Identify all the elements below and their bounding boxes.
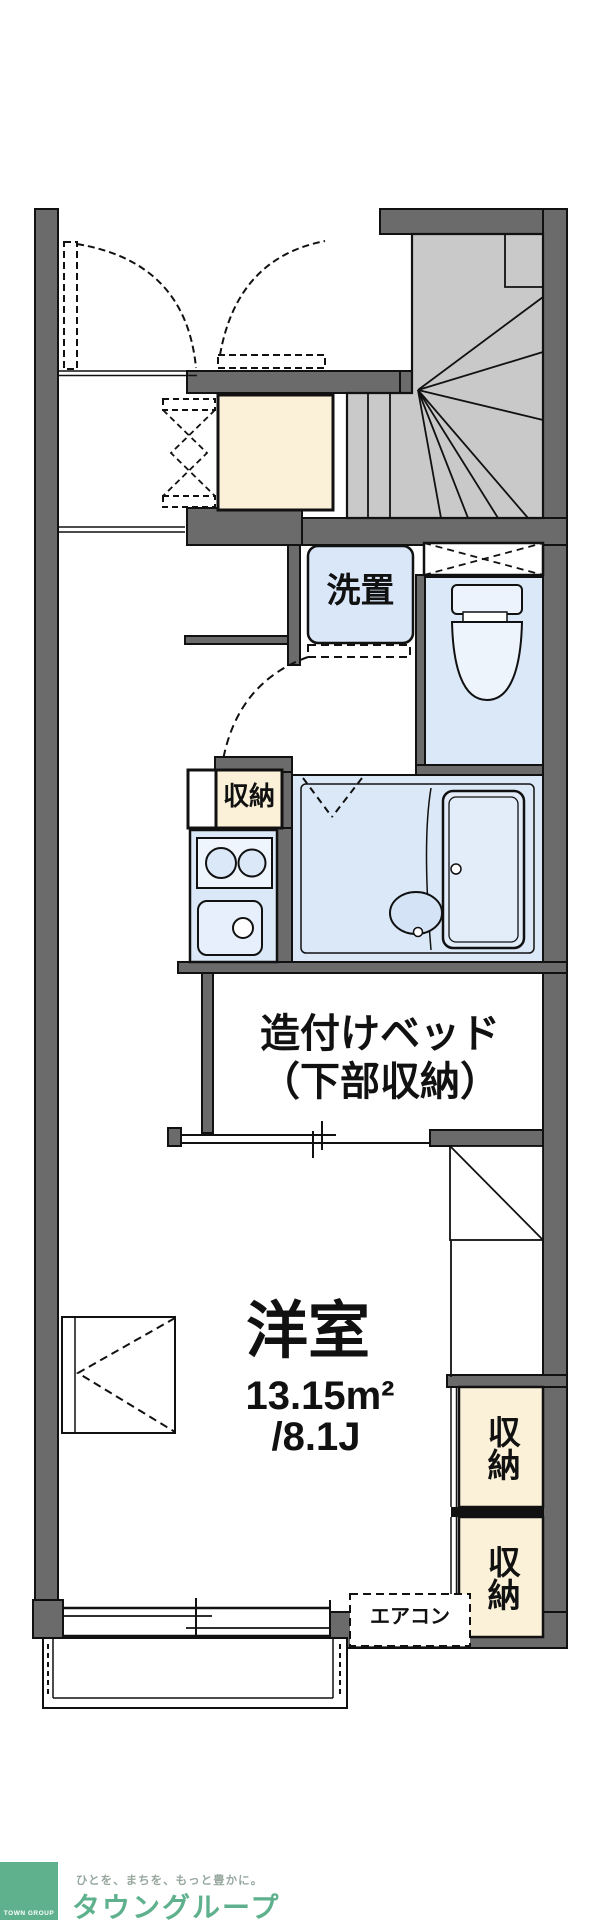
hall-step-line [58, 371, 197, 376]
built-in-bed-sublabel: （下部収納） [180, 1060, 580, 1104]
wall-washroom-left [288, 545, 300, 665]
wall-toilet-left [416, 575, 425, 765]
corridor-line [58, 527, 185, 532]
wall-under-stairs [302, 518, 567, 545]
wall-kitchen-bath-divider [277, 828, 292, 962]
room-name-label: 洋室 [158, 1298, 458, 1366]
toilet-hinge [463, 612, 507, 622]
burner-left [206, 848, 236, 878]
wall-bed-top [178, 962, 567, 973]
aircon-label: エアコン [350, 1606, 470, 1628]
sink-drain [233, 918, 253, 938]
wall-bed-right-stub [430, 1130, 543, 1146]
wall-mid-stub [185, 636, 288, 644]
mid-closet-door [188, 770, 216, 828]
mid-closet-label: 収納 [216, 782, 282, 811]
room-area-jo-label: /8.1J [166, 1415, 466, 1459]
wall-bottom-left [33, 1600, 63, 1638]
wall-left [35, 209, 58, 1638]
bathroom [292, 775, 543, 962]
town-group-logo-box: TOWN GROUP [0, 1862, 58, 1920]
burner-right [239, 850, 266, 877]
bifold-closet-door [163, 399, 215, 507]
built-in-bed-label: 造付けベッド [180, 1012, 580, 1056]
footer-brand: タウングループ [72, 1886, 472, 1920]
basin-drain [414, 928, 423, 937]
toilet-room [424, 543, 543, 765]
wall-toilet-bottom [416, 765, 543, 775]
balcony [43, 1638, 347, 1708]
wall-stair-top [380, 209, 567, 234]
wall-under-genkan [187, 508, 302, 545]
town-group-logo-text: TOWN GROUP [0, 1910, 58, 1917]
genkan-closet-box [218, 395, 333, 510]
bed-sliding-door [182, 1121, 431, 1158]
kitchen [190, 830, 277, 962]
closet-right-bottom-label: 収納 [459, 1523, 543, 1633]
bathtub-handle [451, 864, 461, 874]
wall-bed-left-cap [168, 1128, 181, 1146]
floorplan-page: 洗置 収納 造付けベッド （下部収納） 洋室 13.15m² /8.1J エアコ… [0, 0, 604, 1920]
room-area-m2-label: 13.15m² [170, 1374, 470, 1418]
entrance-door [218, 241, 325, 368]
toilet-tank [452, 585, 522, 614]
left-door [64, 242, 196, 369]
wall-hall-bottom [187, 371, 423, 393]
laundry-space-label: 洗置 [308, 573, 413, 610]
closet-right-top-label: 収納 [459, 1393, 543, 1503]
closet-divider [451, 1507, 543, 1517]
bed-area [182, 1121, 431, 1158]
washroom-door [223, 645, 410, 760]
wall-right [543, 209, 567, 1648]
